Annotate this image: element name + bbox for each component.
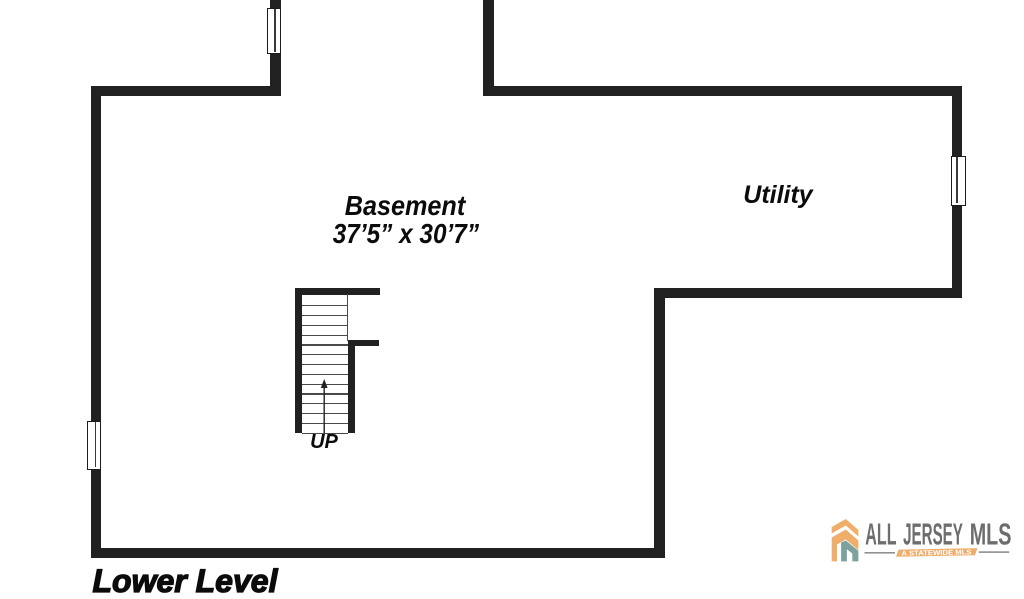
- svg-text:MLS: MLS: [970, 517, 1012, 552]
- svg-text:A STATEWIDE MLS: A STATEWIDE MLS: [901, 549, 971, 557]
- svg-text:ALL: ALL: [865, 517, 896, 552]
- svg-text:JERSEY: JERSEY: [903, 517, 963, 552]
